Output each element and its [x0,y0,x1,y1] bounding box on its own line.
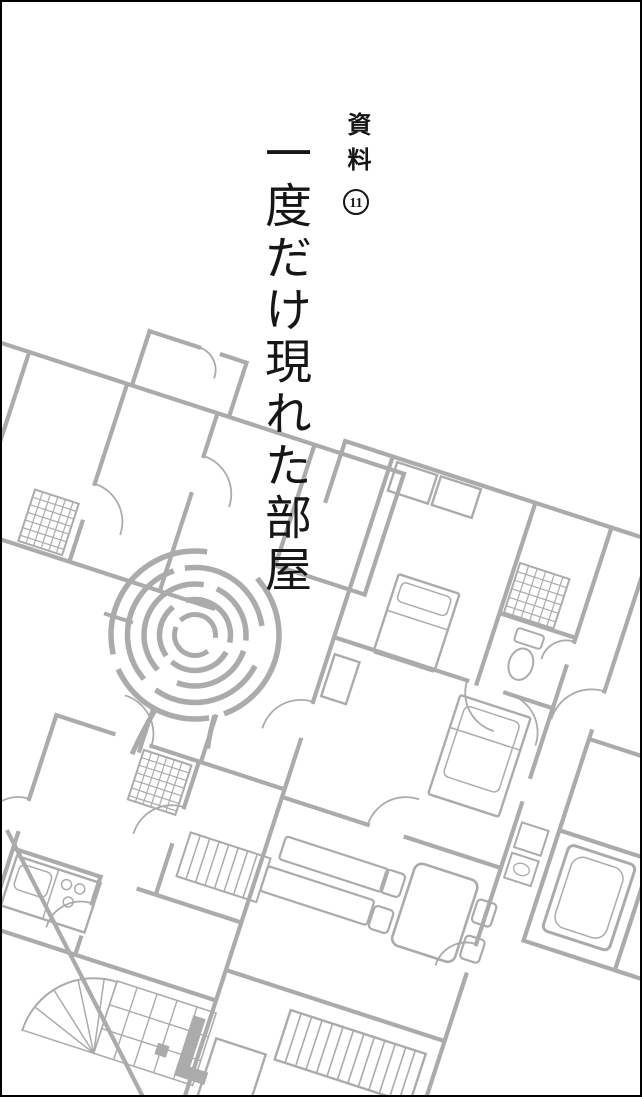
document-label: 資料11 [343,112,369,215]
toilet-fixture [503,628,545,684]
floorplan-drawing [2,2,642,1097]
dining-furniture [257,818,502,971]
staircase [19,802,468,1097]
document-page: 資料11 一度だけ現れた部屋 [0,0,642,1097]
page-title: 一度だけ現れた部屋 [259,129,306,597]
circled-number-11: 11 [343,189,369,215]
bath-fixtures [492,822,638,951]
document-label-text: 資料 [343,112,369,182]
kitchen-counter [2,856,101,933]
floorplan-rooms [2,272,642,1097]
